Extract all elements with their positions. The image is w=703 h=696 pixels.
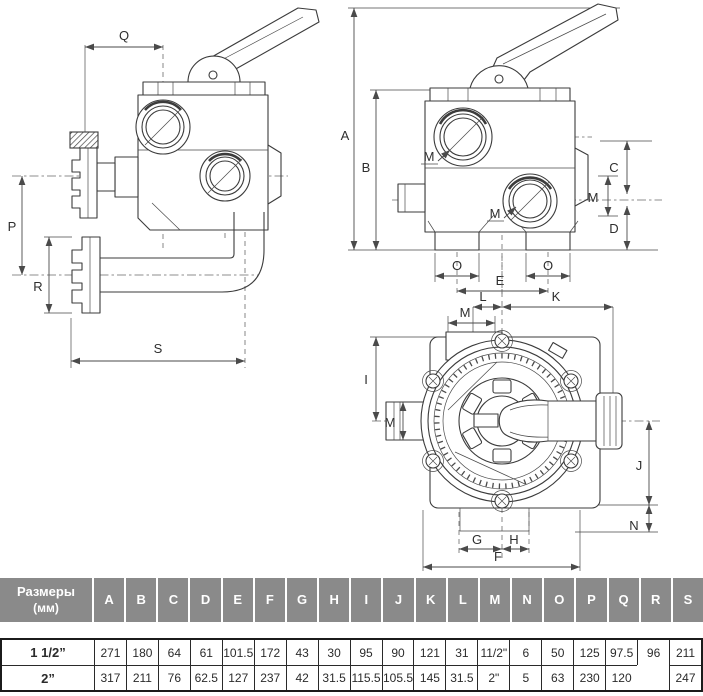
cell-K-row2: 145	[413, 665, 445, 690]
cell-E-row1: 101.5	[222, 640, 254, 665]
cell-C-row2: 76	[158, 665, 190, 690]
column-header-F: F	[255, 578, 285, 622]
column-header-R: R	[641, 578, 671, 622]
column-header-P: P	[576, 578, 606, 622]
cell-A-row2: 317	[94, 665, 126, 690]
dim-label-d: D	[609, 221, 618, 236]
cell-S-row1: 211	[669, 640, 701, 665]
dim-label-b: B	[362, 160, 371, 175]
column-header-A: A	[94, 578, 124, 622]
cell-M-row1: 11/2"	[477, 640, 509, 665]
column-header-G: G	[287, 578, 317, 622]
cell-B-row1: 180	[126, 640, 158, 665]
column-header-C: C	[158, 578, 188, 622]
dim-label-p: P	[8, 219, 17, 234]
dim-label-r: R	[33, 279, 42, 294]
side-port-top	[136, 100, 190, 154]
front-body	[398, 88, 588, 250]
hatched-cap	[70, 132, 98, 148]
column-header-M: M	[480, 578, 510, 622]
column-header-L: L	[448, 578, 478, 622]
dim-label-f: F	[494, 549, 502, 564]
cell-Q-row2: 120	[605, 665, 637, 690]
cell-R-merged: 96	[637, 640, 669, 665]
cell-F-row1: 172	[254, 640, 286, 665]
valve-diagram: Q P R S	[0, 0, 703, 576]
cell-O-row2: 63	[541, 665, 573, 690]
front-port-right	[503, 174, 557, 228]
cell-L-row2: 31.5	[445, 665, 477, 690]
cell-E-row2: 127	[222, 665, 254, 690]
corner-title-line2: (мм)	[33, 601, 59, 616]
column-header-Q: Q	[609, 578, 639, 622]
table-corner-cell: Размеры (мм)	[0, 578, 92, 622]
dim-label-j: J	[636, 458, 643, 473]
front-handle	[470, 4, 618, 88]
column-header-N: N	[512, 578, 542, 622]
column-header-O: O	[544, 578, 574, 622]
dim-label-a: A	[341, 128, 350, 143]
cell-S-row2: 247	[669, 665, 701, 690]
cell-G-row1: 43	[286, 640, 318, 665]
dim-label-m-right: M	[588, 190, 599, 205]
cell-D-row1: 61	[190, 640, 222, 665]
column-header-H: H	[319, 578, 349, 622]
dim-label-n: N	[629, 518, 638, 533]
cell-F-row2: 237	[254, 665, 286, 690]
cell-N-row1: 6	[509, 640, 541, 665]
dim-label-g: G	[472, 532, 482, 547]
front-view-drawing: A B C M D O O E M M	[341, 4, 662, 296]
size-table-header: Размеры (мм) ABCDEFGHIJKLMNOPQRS	[0, 578, 703, 622]
cell-J-row1: 90	[382, 640, 414, 665]
size-table: 1 1/2”2711806461101.5172433095901213111/…	[0, 638, 703, 692]
cell-A-row1: 271	[94, 640, 126, 665]
cell-M-row2: 2"	[477, 665, 509, 690]
cell-H-row1: 30	[318, 640, 350, 665]
column-header-E: E	[223, 578, 253, 622]
column-header-S: S	[673, 578, 703, 622]
row-label-1: 1 1/2”	[2, 640, 94, 665]
cell-O-row1: 50	[541, 640, 573, 665]
cell-P-row1: 125	[573, 640, 605, 665]
side-handle	[188, 8, 319, 82]
cell-N-row2: 5	[509, 665, 541, 690]
dim-label-s: S	[154, 341, 163, 356]
dim-label-k: K	[552, 289, 561, 304]
cell-C-row1: 64	[158, 640, 190, 665]
cell-L-row1: 31	[445, 640, 477, 665]
column-header-I: I	[351, 578, 381, 622]
cell-D-row2: 62.5	[190, 665, 222, 690]
cell-P-row2: 230	[573, 665, 605, 690]
dim-label-m-left: M	[385, 415, 396, 430]
cell-I-row1: 95	[350, 640, 382, 665]
dim-label-e: E	[496, 273, 505, 288]
corner-title-line1: Размеры	[17, 584, 75, 600]
column-header-J: J	[383, 578, 413, 622]
column-header-K: K	[416, 578, 446, 622]
cell-Q-row1: 97.5	[605, 640, 637, 665]
dim-label-m-top: M	[460, 305, 471, 320]
column-header-B: B	[126, 578, 156, 622]
cell-G-row2: 42	[286, 665, 318, 690]
column-header-D: D	[190, 578, 220, 622]
side-union-nut-top	[70, 132, 138, 218]
dim-label-q: Q	[119, 28, 129, 43]
dim-label-h: H	[509, 532, 518, 547]
top-view-drawing: L K M I M J N G H F	[364, 256, 660, 571]
dim-label-l: L	[479, 289, 486, 304]
side-port-bottom	[200, 151, 250, 201]
cell-J-row2: 105.5	[382, 665, 414, 690]
dim-label-o-left: O	[452, 258, 462, 273]
cell-H-row2: 31.5	[318, 665, 350, 690]
row-label-2: 2”	[2, 665, 94, 690]
dim-label-c: C	[609, 160, 618, 175]
cell-B-row2: 211	[126, 665, 158, 690]
cell-I-row2: 115.5	[350, 665, 382, 690]
cell-K-row1: 121	[413, 640, 445, 665]
dim-label-i: I	[364, 372, 368, 387]
dim-label-m-port-bottom: M	[490, 206, 501, 221]
dim-label-m-port-top: M	[424, 149, 435, 164]
dim-label-o-right: O	[543, 258, 553, 273]
side-view-drawing: Q P R S	[8, 8, 319, 368]
